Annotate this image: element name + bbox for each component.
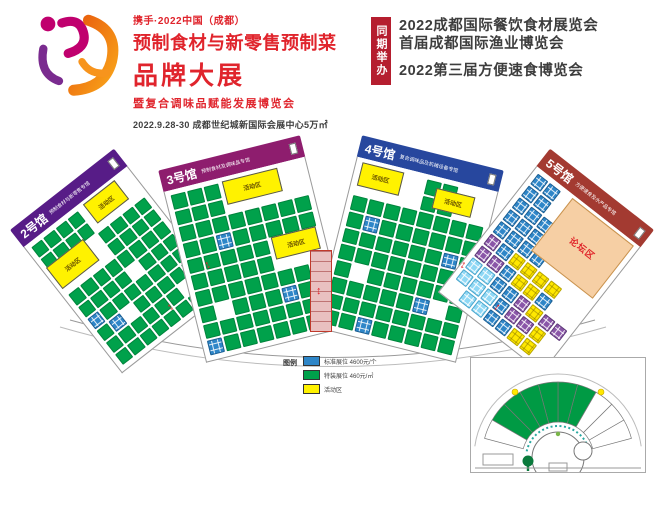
booth xyxy=(338,244,356,262)
booth xyxy=(392,309,410,327)
booth xyxy=(191,273,209,291)
booth xyxy=(253,240,271,258)
booth xyxy=(395,224,413,242)
booth xyxy=(265,289,283,307)
booth xyxy=(363,285,381,303)
booth xyxy=(219,317,237,335)
booth xyxy=(342,228,360,246)
booth xyxy=(187,188,205,206)
booth xyxy=(223,333,241,351)
empty-slot xyxy=(286,163,304,181)
booth xyxy=(412,228,430,246)
booth xyxy=(338,313,356,331)
booth xyxy=(354,317,372,335)
booth xyxy=(187,257,205,275)
booth xyxy=(228,281,246,299)
empty-slot xyxy=(473,192,491,210)
booth xyxy=(232,297,250,315)
venue-minimap xyxy=(470,357,646,473)
booth xyxy=(256,325,274,343)
booth xyxy=(437,338,455,356)
booth xyxy=(350,195,368,213)
booth xyxy=(387,325,405,343)
booth xyxy=(375,305,393,323)
booth xyxy=(277,268,295,286)
booth xyxy=(412,297,430,315)
legend-swatch-yellow xyxy=(303,384,320,394)
concurrent-badge: 同期举办 xyxy=(371,17,391,85)
expo-logo xyxy=(36,12,128,104)
expo-title-line2: 品牌大展 xyxy=(133,56,373,92)
booth xyxy=(207,338,225,356)
expo-floorplan-poster: 携手·2022中国（成都） 预制食材与新零售预制菜 品牌大展 暨复合调味品赋能发… xyxy=(0,0,666,506)
booth xyxy=(195,220,213,238)
booth xyxy=(199,236,217,254)
booth xyxy=(379,220,397,238)
booth xyxy=(278,199,296,217)
booth xyxy=(236,244,254,262)
legend-label-special: 特装展位 460元/㎡ xyxy=(324,371,373,380)
booth xyxy=(367,268,385,286)
empty-slot xyxy=(429,301,447,319)
booth xyxy=(220,248,238,266)
booth xyxy=(366,199,384,217)
concurrent-events-block: 同期举办 2022成都国际餐饮食材展览会 首届成都国际渔业博览会 2022第三届… xyxy=(371,17,598,85)
booth xyxy=(228,212,246,230)
booth xyxy=(404,329,422,347)
booth xyxy=(195,289,213,307)
booth xyxy=(252,309,270,327)
booth xyxy=(204,183,222,201)
booth xyxy=(359,301,377,319)
expo-title-line1: 预制食材与新零售预制菜 xyxy=(133,29,373,55)
booth xyxy=(232,228,250,246)
legend-swatch-green xyxy=(303,370,320,380)
corridor-arrow-icon: ↕ xyxy=(316,286,322,297)
booth xyxy=(404,260,422,278)
booth xyxy=(362,216,380,234)
booth xyxy=(379,289,397,307)
booth xyxy=(224,264,242,282)
booth xyxy=(346,280,364,298)
booth xyxy=(449,220,467,238)
booth xyxy=(424,248,442,266)
booth xyxy=(396,293,414,311)
booth xyxy=(383,204,401,222)
booth xyxy=(179,224,197,242)
booth xyxy=(334,260,352,278)
concurrent-event-1: 2022成都国际餐饮食材展览会 xyxy=(399,17,598,35)
booth xyxy=(257,256,275,274)
booth xyxy=(416,281,434,299)
booth xyxy=(425,317,443,335)
booth xyxy=(416,212,434,230)
booth xyxy=(387,256,405,274)
legend-row-special: 特装展位 460元/㎡ xyxy=(303,370,377,380)
booth xyxy=(408,244,426,262)
booth xyxy=(445,236,463,254)
expo-subtitle: 暨复合调味品赋能发展博览会 xyxy=(133,95,373,111)
logo-tagline: 携手·2022中国（成都） xyxy=(133,12,373,27)
booth xyxy=(236,313,254,331)
booth xyxy=(248,293,266,311)
empty-slot xyxy=(215,301,233,319)
booth xyxy=(245,208,263,226)
booth xyxy=(420,264,438,282)
booth xyxy=(199,305,217,323)
booth xyxy=(273,321,291,339)
booth xyxy=(211,285,229,303)
booth xyxy=(432,216,450,234)
legend-label-activity: 活动区 xyxy=(324,385,342,394)
booth xyxy=(207,269,225,287)
booth xyxy=(391,240,409,258)
floorplan: 2号馆预制食材与新零售专馆活动区活动区3号馆预制食材及调味品专馆活动区活动区4号… xyxy=(0,120,666,506)
booth xyxy=(399,208,417,226)
booth xyxy=(191,204,209,222)
booth xyxy=(240,329,258,347)
legend-row-activity: 活动区 xyxy=(303,384,377,394)
booth xyxy=(400,277,418,295)
booth xyxy=(261,204,279,222)
concurrent-event-2: 首届成都国际渔业博览会 xyxy=(399,35,598,53)
booth xyxy=(441,321,459,339)
booth xyxy=(371,321,389,339)
booth xyxy=(294,195,312,213)
legend: 图例 标准展位 4600元/个 特装展位 460元/㎡ 活动区 xyxy=(283,356,377,394)
concurrent-event-3: 2022第三届方便速食博览会 xyxy=(399,62,598,80)
booth xyxy=(371,252,389,270)
booth xyxy=(285,301,303,319)
empty-slot xyxy=(290,179,308,197)
booth xyxy=(289,317,307,335)
booth xyxy=(420,333,438,351)
booth xyxy=(346,212,364,230)
booth xyxy=(261,272,279,290)
booth xyxy=(358,232,376,250)
empty-slot xyxy=(350,264,368,282)
booth xyxy=(183,240,201,258)
booth xyxy=(342,297,360,315)
legend-title: 图例 xyxy=(283,358,297,394)
booth xyxy=(175,208,193,226)
booth xyxy=(330,276,348,294)
booth xyxy=(216,232,234,250)
booth xyxy=(208,200,226,218)
booth xyxy=(244,277,262,295)
legend-label-standard: 标准展位 4600元/个 xyxy=(324,357,377,366)
empty-slot xyxy=(407,175,425,193)
empty-slot xyxy=(403,191,421,209)
booth xyxy=(249,224,267,242)
booth xyxy=(212,216,230,234)
booth xyxy=(408,313,426,331)
booth xyxy=(203,321,221,339)
booth xyxy=(269,305,287,323)
booth xyxy=(375,236,393,254)
booth xyxy=(354,248,372,266)
booth xyxy=(171,192,189,210)
booth xyxy=(428,232,446,250)
booth xyxy=(281,285,299,303)
legend-row-standard: 标准展位 4600元/个 xyxy=(303,356,377,366)
legend-swatch-blue xyxy=(303,356,320,366)
booth xyxy=(383,272,401,290)
booth xyxy=(240,260,258,278)
